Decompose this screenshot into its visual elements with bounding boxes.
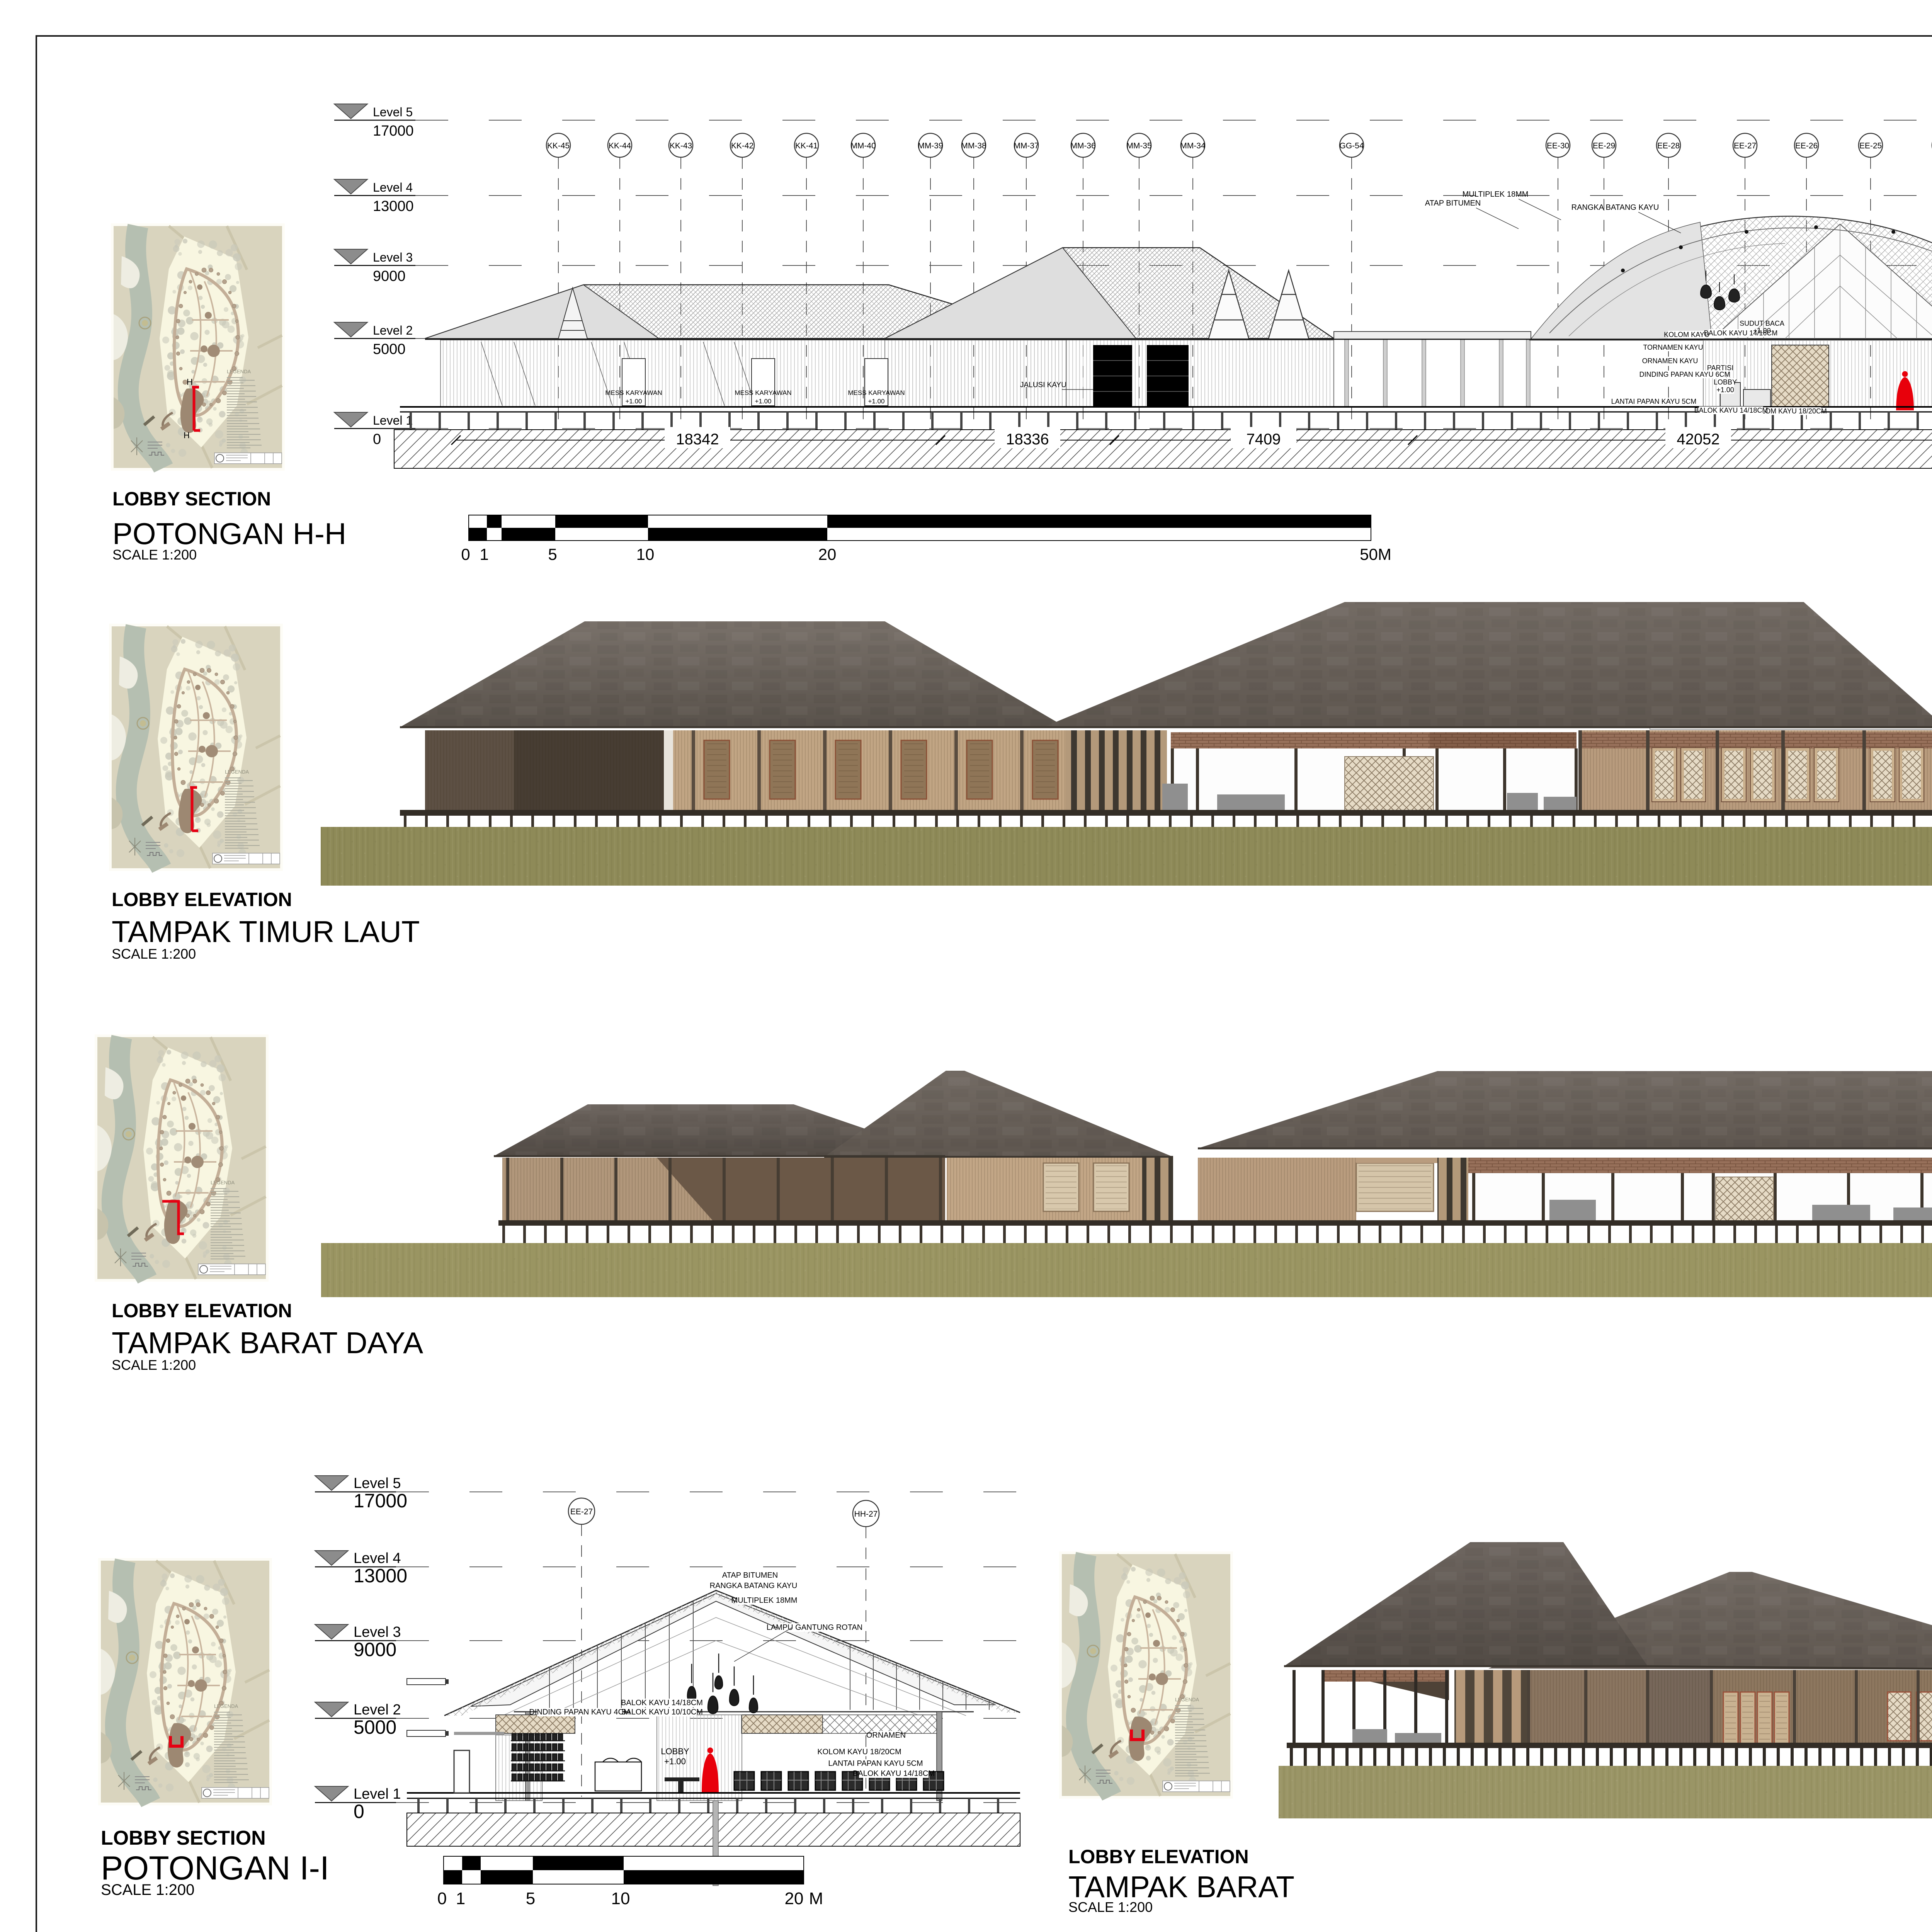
svg-text:0: 0 — [354, 1801, 364, 1822]
svg-text:MESS KARYAWAN: MESS KARYAWAN — [848, 389, 905, 396]
svg-text:LOBBY ELEVATION: LOBBY ELEVATION — [112, 889, 292, 910]
svg-text:1: 1 — [480, 545, 488, 563]
svg-text:BALOK KAYU 14/18CM: BALOK KAYU 14/18CM — [1694, 406, 1768, 414]
svg-text:LOBBY: LOBBY — [1714, 378, 1737, 386]
svg-text:1: 1 — [456, 1889, 465, 1908]
svg-text:RANGKA BATANG KAYU: RANGKA BATANG KAYU — [1571, 203, 1659, 212]
svg-text:13000: 13000 — [354, 1565, 407, 1587]
svg-text:ATAP BITUMEN: ATAP BITUMEN — [722, 1571, 778, 1580]
svg-text:EE-26: EE-26 — [1795, 141, 1818, 150]
svg-text:+1.00: +1.00 — [664, 1757, 686, 1766]
svg-text:BALOK KAYU 10/10CM: BALOK KAYU 10/10CM — [621, 1708, 703, 1716]
svg-text:MM-35: MM-35 — [1126, 141, 1151, 150]
svg-text:18342: 18342 — [676, 431, 719, 448]
svg-text:EE-28: EE-28 — [1657, 141, 1680, 150]
svg-text:+1.00: +1.00 — [755, 398, 771, 405]
svg-text:7409: 7409 — [1247, 431, 1281, 448]
svg-text:SCALE 1:200: SCALE 1:200 — [112, 547, 197, 563]
svg-text:MM-36: MM-36 — [1070, 141, 1095, 150]
svg-text:50M: 50M — [1360, 545, 1391, 563]
svg-text:Level 1: Level 1 — [373, 413, 413, 427]
svg-text:LOBBY ELEVATION: LOBBY ELEVATION — [112, 1300, 292, 1321]
svg-text:EE-30: EE-30 — [1547, 141, 1569, 150]
svg-text:SCALE 1:200: SCALE 1:200 — [112, 946, 196, 962]
svg-text:KK-44: KK-44 — [609, 141, 631, 150]
svg-text:SCALE 1:200: SCALE 1:200 — [112, 1357, 196, 1373]
svg-text:10: 10 — [636, 545, 655, 563]
svg-text:LANTAI PAPAN KAYU 5CM: LANTAI PAPAN KAYU 5CM — [828, 1759, 923, 1768]
svg-text:EE-27: EE-27 — [1734, 141, 1756, 150]
svg-text:Level 3: Level 3 — [354, 1624, 401, 1640]
svg-text:MULTIPLEK 18MM: MULTIPLEK 18MM — [1463, 190, 1529, 199]
svg-text:Level 2: Level 2 — [373, 323, 413, 337]
svg-text:Level 3: Level 3 — [373, 250, 413, 264]
svg-text:42052: 42052 — [1677, 431, 1719, 448]
svg-text:GG-54: GG-54 — [1339, 141, 1364, 150]
svg-text:EE-27: EE-27 — [570, 1507, 593, 1516]
svg-text:Level 4: Level 4 — [354, 1550, 401, 1566]
svg-text:EE-29: EE-29 — [1593, 141, 1615, 150]
svg-text:10: 10 — [611, 1889, 630, 1908]
svg-text:KK-42: KK-42 — [731, 141, 753, 150]
svg-text:+1.00: +1.00 — [1753, 327, 1771, 335]
svg-text:H: H — [187, 377, 193, 387]
svg-text:ORNAMEN KAYU: ORNAMEN KAYU — [1642, 357, 1698, 365]
svg-text:KOLOM KAYU 18/20CM: KOLOM KAYU 18/20CM — [817, 1748, 901, 1756]
svg-text:20: 20 — [785, 1889, 804, 1908]
svg-text:HH-27: HH-27 — [854, 1510, 878, 1519]
svg-text:LOBBY: LOBBY — [661, 1747, 689, 1756]
svg-text:SCALE 1:200: SCALE 1:200 — [1068, 1899, 1153, 1915]
svg-text:LAMPU GANTUNG ROTAN: LAMPU GANTUNG ROTAN — [767, 1623, 863, 1632]
svg-text:MESS KARYAWAN: MESS KARYAWAN — [735, 389, 791, 396]
svg-text:Level 4: Level 4 — [373, 180, 413, 194]
svg-text:DINDING PAPAN KAYU 4CM: DINDING PAPAN KAYU 4CM — [529, 1708, 630, 1716]
svg-text:17000: 17000 — [373, 123, 414, 139]
svg-text:LOBBY SECTION: LOBBY SECTION — [101, 1827, 266, 1849]
svg-text:MULTIPLEK 18MM: MULTIPLEK 18MM — [731, 1596, 798, 1605]
svg-text:5: 5 — [526, 1889, 535, 1908]
svg-text:5: 5 — [548, 545, 557, 563]
svg-text:18336: 18336 — [1006, 431, 1049, 448]
svg-text:TAMPAK BARAT: TAMPAK BARAT — [1068, 1870, 1294, 1904]
svg-text:LOBBY ELEVATION: LOBBY ELEVATION — [1068, 1846, 1249, 1867]
svg-text:MM-34: MM-34 — [1180, 141, 1206, 150]
svg-text:LOBBY SECTION: LOBBY SECTION — [112, 488, 271, 510]
svg-text:17000: 17000 — [354, 1490, 407, 1512]
svg-text:TORNAMEN KAYU: TORNAMEN KAYU — [1643, 344, 1703, 351]
svg-text:5000: 5000 — [354, 1716, 396, 1738]
svg-text:MM-40: MM-40 — [850, 141, 876, 150]
svg-text:JALUSI KAYU: JALUSI KAYU — [1020, 381, 1066, 389]
svg-text:BALOK KAYU 14/18CM: BALOK KAYU 14/18CM — [853, 1769, 935, 1778]
svg-text:MM-37: MM-37 — [1014, 141, 1039, 150]
svg-text:H: H — [184, 430, 190, 440]
svg-text:9000: 9000 — [354, 1639, 396, 1660]
svg-text:LANTAI PAPAN KAYU 5CM: LANTAI PAPAN KAYU 5CM — [1611, 398, 1697, 405]
svg-text:20: 20 — [818, 545, 837, 563]
svg-text:Level 5: Level 5 — [373, 105, 413, 119]
svg-text:KK-45: KK-45 — [547, 141, 570, 150]
svg-text:0: 0 — [461, 545, 470, 563]
svg-text:5000: 5000 — [373, 341, 406, 357]
svg-text:TAMPAK BARAT DAYA: TAMPAK BARAT DAYA — [112, 1326, 423, 1360]
svg-text:PARTISI: PARTISI — [1707, 364, 1733, 372]
svg-text:0: 0 — [373, 431, 381, 447]
svg-text:M: M — [809, 1889, 823, 1908]
svg-text:+1.00: +1.00 — [868, 398, 884, 405]
svg-text:POTONGAN H-H: POTONGAN H-H — [112, 517, 346, 551]
svg-text:Level 1: Level 1 — [354, 1786, 401, 1802]
svg-text:EE-25: EE-25 — [1859, 141, 1882, 150]
svg-text:MM-39: MM-39 — [918, 141, 943, 150]
svg-text:RANGKA BATANG KAYU: RANGKA BATANG KAYU — [710, 1582, 798, 1590]
svg-text:Level 2: Level 2 — [354, 1702, 401, 1718]
svg-text:+1.00: +1.00 — [1716, 386, 1734, 394]
svg-text:TAMPAK TIMUR LAUT: TAMPAK TIMUR LAUT — [112, 915, 420, 949]
svg-text:KK-41: KK-41 — [795, 141, 818, 150]
svg-text:SUDUT BACA: SUDUT BACA — [1740, 320, 1784, 327]
svg-text:ORNAMEN: ORNAMEN — [866, 1731, 906, 1740]
svg-text:BALOK KAYU 14/18CM: BALOK KAYU 14/18CM — [621, 1699, 703, 1707]
svg-text:SCALE 1:200: SCALE 1:200 — [101, 1881, 194, 1898]
svg-text:+1.00: +1.00 — [625, 398, 642, 405]
svg-text:Level 5: Level 5 — [354, 1475, 401, 1492]
svg-text:9000: 9000 — [373, 268, 406, 284]
svg-text:MM-38: MM-38 — [961, 141, 986, 150]
svg-text:MESS KARYAWAN: MESS KARYAWAN — [605, 389, 662, 396]
svg-text:0: 0 — [437, 1889, 447, 1908]
svg-text:ATAP BITUMEN: ATAP BITUMEN — [1425, 199, 1481, 207]
svg-text:KK-43: KK-43 — [670, 141, 692, 150]
svg-text:13000: 13000 — [373, 198, 414, 214]
